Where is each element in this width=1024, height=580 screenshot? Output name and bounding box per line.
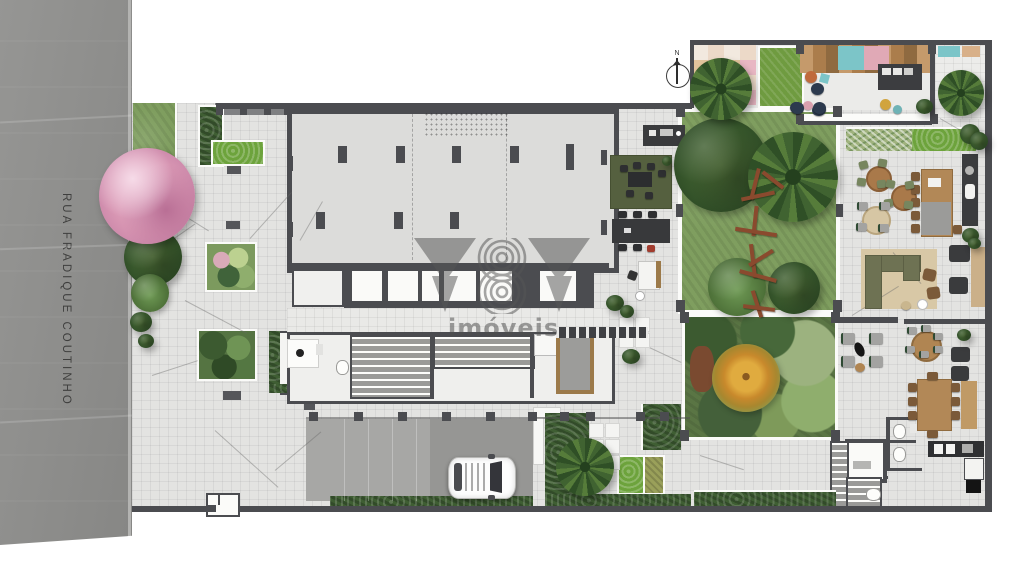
chair xyxy=(869,333,883,344)
wall-post xyxy=(354,412,363,421)
sofa-L-vertical xyxy=(865,255,882,309)
wall-post xyxy=(240,103,247,115)
chair xyxy=(647,245,655,252)
ramp-seam xyxy=(368,419,369,501)
elevator-cell xyxy=(444,271,476,301)
armchair-dark xyxy=(949,277,968,294)
chair xyxy=(633,162,641,169)
side-table xyxy=(917,299,928,310)
wall-post xyxy=(601,220,607,235)
beanbag xyxy=(791,102,804,114)
outer-wall-right xyxy=(985,40,992,509)
chair xyxy=(885,179,895,189)
cowork-table xyxy=(612,219,670,243)
bath-wall xyxy=(886,468,922,471)
toilet xyxy=(336,360,349,375)
hedge-block xyxy=(641,404,681,450)
elevator-cell xyxy=(540,271,576,301)
slab-gridline xyxy=(506,114,507,260)
stairs-secondary xyxy=(433,335,535,369)
wall-post xyxy=(676,106,685,117)
cooktop xyxy=(946,444,955,454)
chair xyxy=(951,411,960,420)
chair xyxy=(857,202,868,210)
compass-ring-icon xyxy=(666,64,690,88)
wood-bench-u xyxy=(556,332,594,394)
wall-post xyxy=(680,312,689,323)
bath-wall xyxy=(886,440,916,443)
chair xyxy=(905,346,915,353)
kitchen-sink xyxy=(962,444,973,453)
armchair-dark xyxy=(949,245,970,262)
chair xyxy=(856,177,866,186)
gourmet-dining-table xyxy=(917,379,952,431)
armchair-dark xyxy=(951,366,969,381)
elevator-cell xyxy=(480,271,512,301)
stepping-stone xyxy=(589,423,604,438)
wall-post xyxy=(338,146,347,163)
car-mirror xyxy=(488,495,495,500)
wall-post xyxy=(833,300,842,312)
outer-wall-bottom xyxy=(132,506,992,512)
chair xyxy=(841,356,855,367)
elevator-cell xyxy=(352,271,382,301)
pouf-beige xyxy=(901,301,911,310)
side-table xyxy=(316,344,323,355)
chair xyxy=(618,244,627,251)
mail-counter xyxy=(556,327,648,338)
street-name: RUA FRADIQUE COUTINHO xyxy=(46,150,86,450)
chair xyxy=(951,397,960,406)
black-box xyxy=(966,480,981,493)
beanbag xyxy=(813,102,826,114)
planter-olive xyxy=(643,455,665,495)
partition-wall xyxy=(904,319,992,324)
reception-hedge-left xyxy=(269,331,280,391)
pouf-orange xyxy=(805,71,817,83)
chair xyxy=(921,325,931,332)
pouf-teal xyxy=(893,105,902,114)
chair xyxy=(908,397,917,406)
street-tuft xyxy=(138,334,154,348)
wall-post xyxy=(510,146,519,163)
armchair-dark xyxy=(951,347,970,362)
chair xyxy=(933,346,943,353)
wall-post xyxy=(680,430,689,441)
garden-shrub xyxy=(768,262,820,314)
slab-dotted-zone xyxy=(424,112,508,138)
kitchenette-sink xyxy=(649,130,656,136)
wall-post xyxy=(676,204,683,217)
wall-post xyxy=(566,144,574,170)
kitchenette-dot xyxy=(676,131,681,136)
chair xyxy=(869,356,883,367)
chair xyxy=(953,225,962,234)
bench xyxy=(226,221,240,229)
slab-gridline xyxy=(412,114,413,260)
chair xyxy=(841,333,855,344)
wall-post xyxy=(486,412,495,421)
wall-post xyxy=(396,146,405,163)
wall-post xyxy=(284,103,291,115)
sofa-cushion xyxy=(882,68,891,75)
pantry-cell xyxy=(964,458,984,480)
potted-plant xyxy=(662,156,672,166)
wall-post xyxy=(560,412,569,421)
wall-post xyxy=(930,114,938,124)
blossom-tree xyxy=(99,148,195,244)
wall-post xyxy=(676,300,685,312)
pouf-pink xyxy=(803,101,813,110)
plant xyxy=(957,329,971,341)
wall-post xyxy=(216,103,223,115)
table-object xyxy=(928,178,941,187)
work-desk-wood xyxy=(656,261,661,288)
compass-tip-icon xyxy=(673,56,681,65)
elevator-cell xyxy=(388,271,418,301)
elevator-sill xyxy=(853,461,871,469)
chair xyxy=(904,180,914,189)
toilet xyxy=(893,447,906,462)
beanbag xyxy=(811,83,824,95)
chair xyxy=(927,372,938,380)
chair xyxy=(878,224,889,232)
chair xyxy=(626,190,634,197)
ramp-seam xyxy=(344,419,345,501)
mat-teal xyxy=(938,46,960,57)
planter-bright xyxy=(617,455,645,495)
wood-counter xyxy=(971,247,985,307)
cooktop xyxy=(934,444,943,454)
stairs-main xyxy=(350,335,434,399)
toilet xyxy=(866,488,881,501)
wall-post xyxy=(452,146,461,163)
chair xyxy=(904,201,914,210)
street-tuft xyxy=(130,312,152,332)
wall-post xyxy=(836,204,843,217)
plant xyxy=(968,238,981,249)
wall-post xyxy=(636,412,645,421)
chair xyxy=(647,163,655,170)
ramp-seam xyxy=(392,419,393,501)
stool xyxy=(635,291,645,301)
bush xyxy=(622,349,640,364)
wall-post xyxy=(398,412,407,421)
core-room xyxy=(292,269,344,307)
car-rear-window xyxy=(454,463,462,491)
toilet xyxy=(893,424,906,439)
wall-post xyxy=(450,212,459,229)
wall-post xyxy=(287,156,293,171)
terrace-plant xyxy=(916,99,933,114)
wall-post xyxy=(442,412,451,421)
planter-bushes xyxy=(197,329,257,381)
garden-palm xyxy=(748,132,838,222)
wall-post xyxy=(316,212,325,229)
wall-post xyxy=(831,312,840,323)
chair xyxy=(911,224,920,233)
site-plan: RUA FRADIQUE COUTINHO xyxy=(0,0,1024,580)
wall-post xyxy=(796,44,804,54)
bath-sink xyxy=(910,424,917,433)
wall-post xyxy=(601,150,607,165)
hedge-variegated xyxy=(846,127,912,151)
wall-post xyxy=(287,222,293,237)
counter-steel xyxy=(965,166,974,175)
north-indicator: N xyxy=(662,50,692,96)
car-roof-ribs xyxy=(465,463,488,491)
guard-box-divider xyxy=(218,493,220,505)
driveway-line xyxy=(306,417,690,419)
chair xyxy=(933,333,943,340)
chair xyxy=(618,211,627,218)
car-mirror xyxy=(488,454,495,459)
car xyxy=(448,457,514,497)
brown-patch xyxy=(690,346,714,392)
cowork-item xyxy=(624,228,631,233)
sofa-cushion xyxy=(904,68,913,75)
chair xyxy=(908,411,917,420)
pouf-yellow xyxy=(880,99,891,110)
sofa-seat xyxy=(903,255,920,281)
wall-post xyxy=(264,103,271,115)
pouf-wood xyxy=(855,363,865,372)
hedge-planter-bright xyxy=(211,140,265,166)
mat-tan xyxy=(962,46,980,57)
reception-chair xyxy=(296,349,304,357)
chair xyxy=(879,202,890,210)
wall-post xyxy=(309,412,318,421)
chair xyxy=(856,223,867,231)
street-name-label: RUA FRADIQUE COUTINHO xyxy=(60,193,72,407)
wood-counter xyxy=(961,381,977,429)
counter-sink xyxy=(965,184,975,199)
dining-table-runner xyxy=(921,202,951,235)
bush xyxy=(620,305,634,318)
south-palm xyxy=(556,438,614,496)
planter-mixed xyxy=(205,242,257,292)
chair xyxy=(951,383,960,392)
terrace-palm-right xyxy=(938,70,984,116)
wall-post xyxy=(586,412,595,421)
armchair-brown xyxy=(926,286,941,300)
chair xyxy=(919,351,929,358)
chair xyxy=(927,430,938,438)
wall-post xyxy=(928,44,936,54)
sofa-cushion xyxy=(893,68,902,75)
wall-post xyxy=(528,412,537,421)
terrace-palm xyxy=(690,58,752,120)
chair xyxy=(633,244,642,251)
chair xyxy=(620,165,628,172)
chair xyxy=(877,158,887,167)
terrace-wall-bottom xyxy=(798,121,932,125)
meeting-table xyxy=(628,172,652,187)
wall-post xyxy=(660,412,669,421)
chair xyxy=(908,383,917,392)
dark-plants xyxy=(970,132,988,150)
bench xyxy=(223,391,241,400)
ramp-seam xyxy=(416,419,417,501)
outer-wall-terrace-top xyxy=(690,40,992,45)
armchair-brown xyxy=(922,268,937,282)
mat-teal xyxy=(838,46,864,70)
elevator-cell xyxy=(422,271,439,301)
wall-post xyxy=(394,212,403,229)
chair xyxy=(645,192,653,199)
wall-post xyxy=(831,430,840,441)
street-shrub xyxy=(131,274,169,312)
chair xyxy=(911,211,920,220)
lobby-wall xyxy=(430,332,434,398)
orange-tree xyxy=(712,344,780,412)
room-cell xyxy=(534,334,558,356)
wall-post xyxy=(833,106,842,117)
chair xyxy=(648,211,657,218)
chair xyxy=(658,170,666,177)
car-windshield xyxy=(490,461,502,493)
partition-wall xyxy=(836,317,898,323)
wall-post xyxy=(796,114,804,124)
chair xyxy=(907,327,917,334)
chair xyxy=(633,211,642,218)
bench xyxy=(227,166,241,174)
stepping-stone xyxy=(605,423,620,438)
guard-box-desk xyxy=(208,505,216,512)
terrace-lawn xyxy=(758,46,804,108)
kitchenette-cooktop xyxy=(660,129,673,136)
